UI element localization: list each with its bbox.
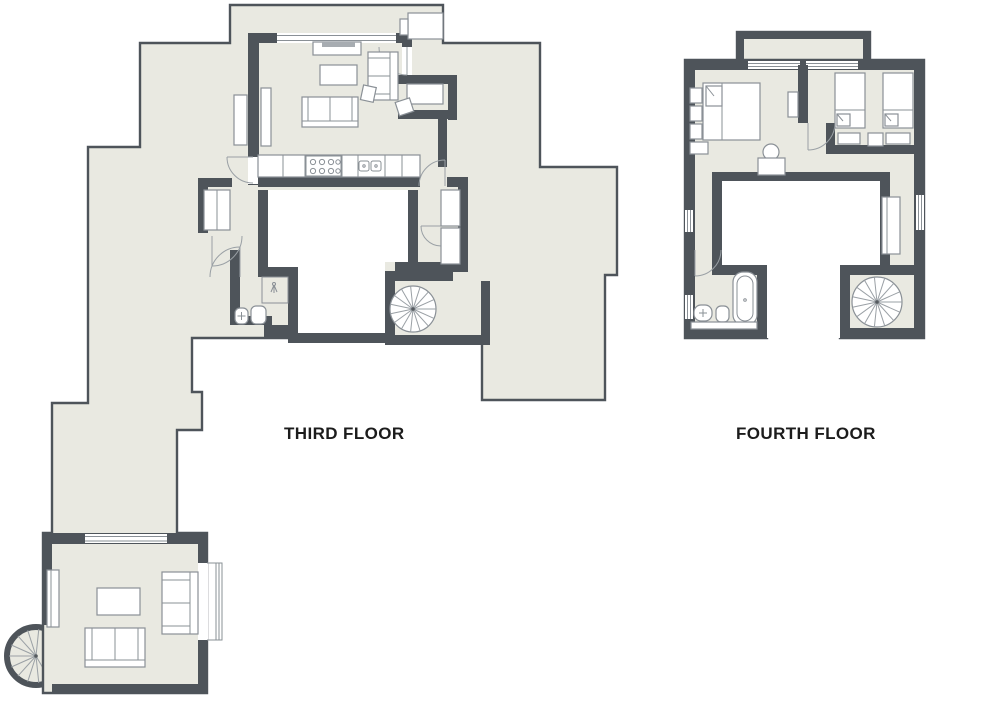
wall <box>481 281 490 335</box>
wall <box>757 275 767 338</box>
desk <box>407 84 443 104</box>
hallway-cabinet <box>234 95 247 145</box>
nightstand <box>690 88 702 103</box>
sofa <box>85 628 145 667</box>
wall <box>198 640 207 693</box>
bathroom-counter <box>691 322 757 329</box>
wall <box>448 84 457 120</box>
toilet-icon <box>716 306 729 322</box>
fourth-floor-plan <box>685 32 924 338</box>
door-opening <box>248 157 259 184</box>
wall <box>385 271 453 281</box>
kitchen-counter <box>258 155 420 177</box>
tv-icon <box>322 42 355 47</box>
wall <box>258 177 420 187</box>
wall <box>258 267 298 277</box>
terrace-bench <box>408 13 443 39</box>
dresser <box>690 142 708 154</box>
sofa <box>162 572 198 634</box>
floor-plan-drawing <box>0 0 1000 713</box>
window <box>685 210 693 232</box>
terrace-side-table <box>400 19 408 35</box>
wall <box>264 325 298 338</box>
balcony <box>737 32 870 63</box>
window <box>685 295 693 319</box>
wall <box>288 277 298 333</box>
closet <box>441 228 460 264</box>
wall <box>385 335 490 345</box>
wall <box>840 275 850 338</box>
coffee-table <box>320 65 357 85</box>
wall <box>408 190 418 262</box>
nightstand <box>690 124 702 139</box>
bed-single <box>835 73 865 128</box>
toilet-icon <box>251 306 266 324</box>
wall-shelf <box>788 92 798 117</box>
closet <box>882 197 900 254</box>
bed-single <box>883 73 913 128</box>
window <box>85 534 167 543</box>
fourth-floor-label: FOURTH FLOOR <box>736 424 876 444</box>
desk <box>758 158 785 175</box>
bed-double <box>703 83 760 140</box>
wall <box>198 533 207 563</box>
wall <box>840 265 924 275</box>
cabinet <box>47 570 59 627</box>
wall <box>288 333 395 343</box>
coffee-table <box>97 588 140 615</box>
nightstand <box>690 106 702 121</box>
window <box>916 195 924 230</box>
sofa <box>302 97 358 127</box>
door-opening <box>198 563 208 640</box>
bedside-table <box>838 133 860 144</box>
wall <box>798 65 808 123</box>
bay-window <box>207 563 222 640</box>
wall <box>712 172 880 181</box>
wall <box>840 328 924 338</box>
radiator <box>261 88 271 146</box>
closet <box>441 190 460 226</box>
third-floor-label: THIRD FLOOR <box>284 424 405 444</box>
bedside-table <box>868 133 883 146</box>
third-floor-plan <box>7 5 617 693</box>
wall <box>52 684 207 693</box>
wall <box>198 178 232 187</box>
wall <box>398 75 457 84</box>
wall <box>248 33 277 43</box>
wall <box>258 190 268 277</box>
wall <box>402 43 412 47</box>
bedside-table <box>886 133 910 144</box>
floor-plan-canvas: THIRD FLOOR FOURTH FLOOR <box>0 0 1000 713</box>
